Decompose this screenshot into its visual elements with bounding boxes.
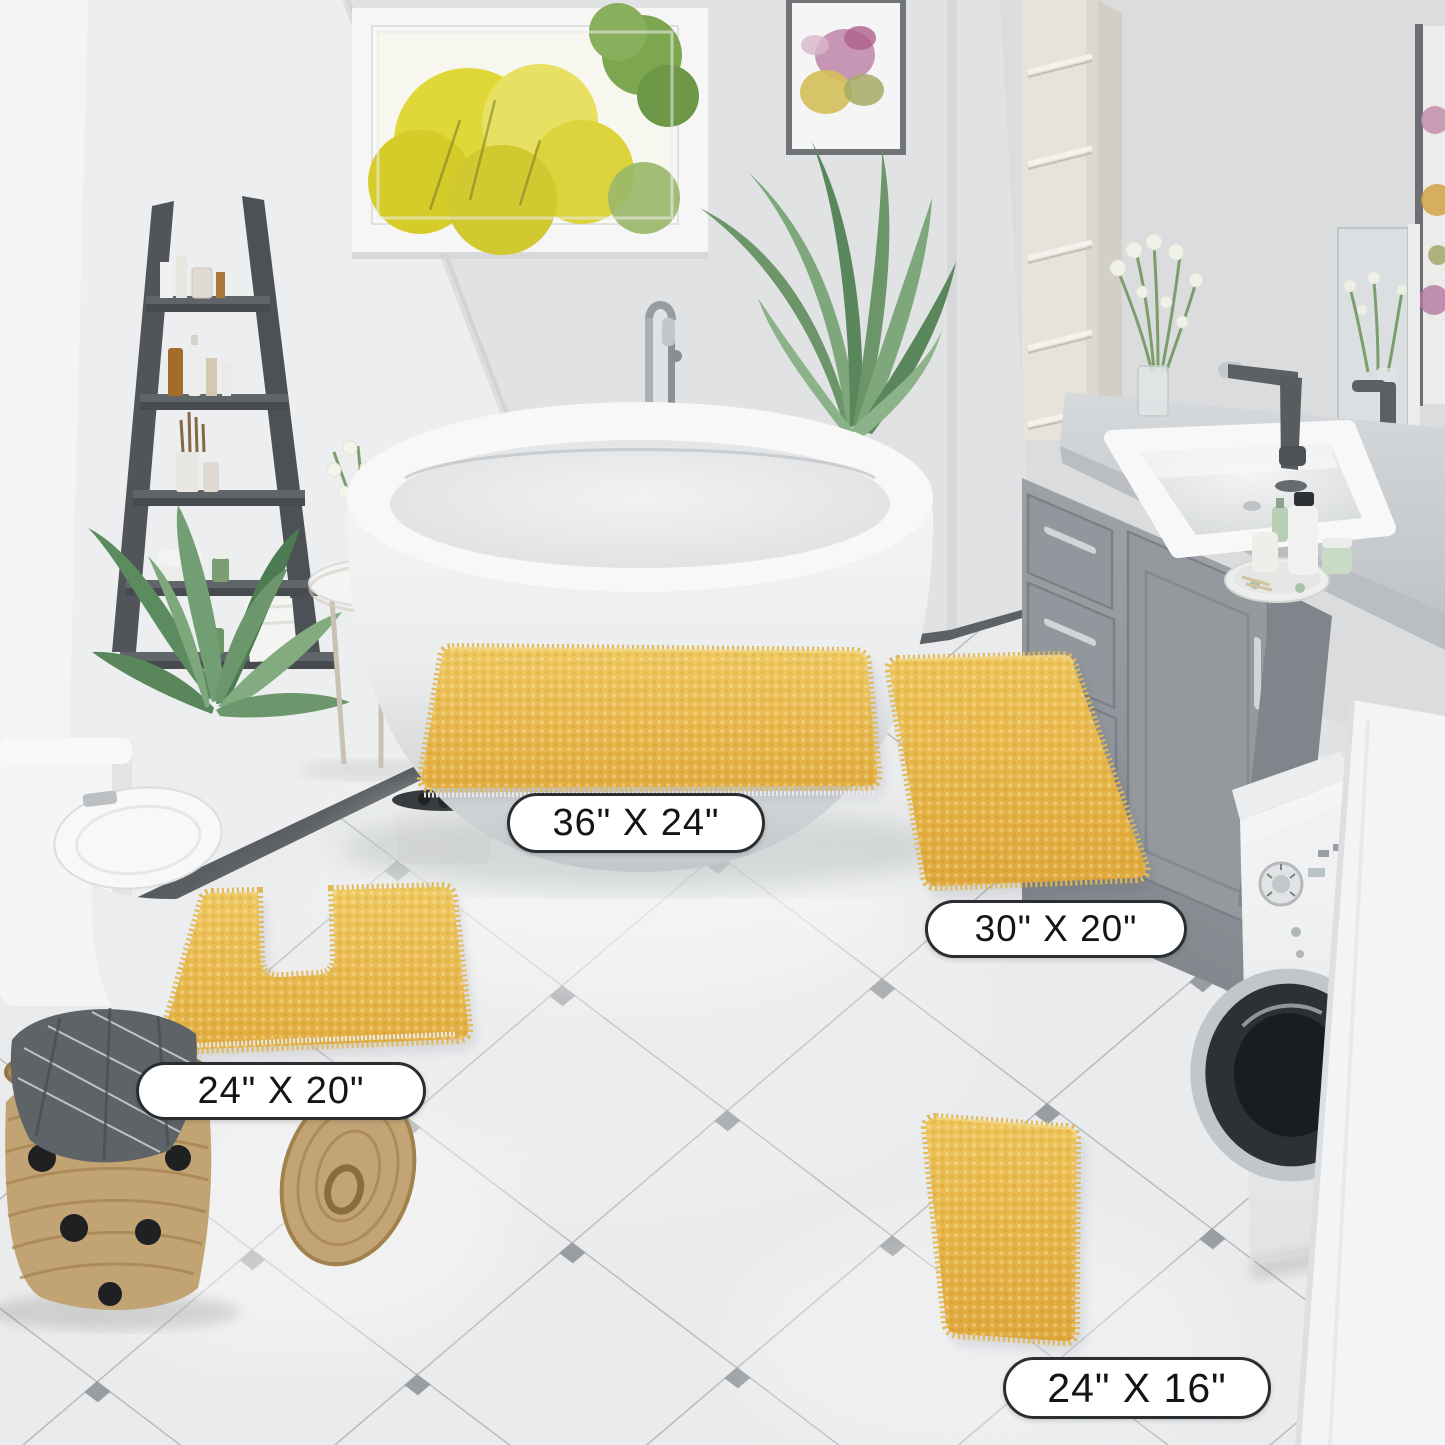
vignette xyxy=(0,0,1445,1445)
size-label-24x20: 24" X 20" xyxy=(136,1062,426,1120)
scene-canvas xyxy=(0,0,1445,1445)
size-label-24x16: 24" X 16" xyxy=(1003,1357,1271,1419)
size-label-30x20: 30" X 20" xyxy=(925,900,1187,958)
size-label-36x24: 36" X 24" xyxy=(507,793,765,853)
bathroom-product-photo: 36" X 24" 30" X 20" 24" X 20" 24" X 16" xyxy=(0,0,1445,1445)
